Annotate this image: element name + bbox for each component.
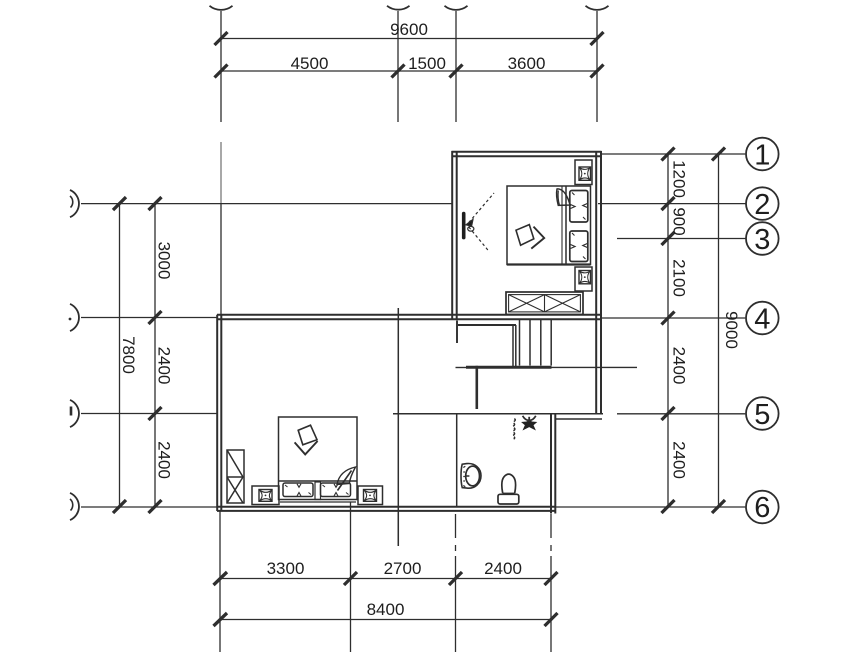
svg-text:1200: 1200 — [670, 160, 689, 198]
svg-text:1: 1 — [754, 140, 770, 172]
svg-text:4: 4 — [754, 304, 770, 336]
svg-text:8400: 8400 — [367, 600, 405, 619]
svg-text:3300: 3300 — [267, 559, 305, 578]
svg-text:2700: 2700 — [384, 559, 422, 578]
svg-text:3000: 3000 — [155, 242, 174, 280]
svg-text:2400: 2400 — [155, 347, 174, 385]
svg-text:2400: 2400 — [484, 559, 522, 578]
svg-text:2400: 2400 — [155, 441, 174, 479]
svg-text:2400: 2400 — [670, 441, 689, 479]
svg-text:1500: 1500 — [408, 54, 446, 73]
svg-text:2: 2 — [754, 189, 770, 221]
svg-text:2400: 2400 — [670, 347, 689, 385]
svg-text:9000: 9000 — [722, 311, 741, 349]
svg-text:7800: 7800 — [119, 336, 138, 374]
svg-text:3600: 3600 — [508, 54, 546, 73]
svg-text:2100: 2100 — [670, 259, 689, 297]
svg-text:5: 5 — [754, 399, 770, 431]
svg-text:900: 900 — [670, 207, 689, 235]
svg-text:4500: 4500 — [291, 54, 329, 73]
svg-text:6: 6 — [754, 492, 770, 524]
svg-text:3: 3 — [754, 224, 770, 256]
svg-text:9600: 9600 — [390, 20, 428, 39]
